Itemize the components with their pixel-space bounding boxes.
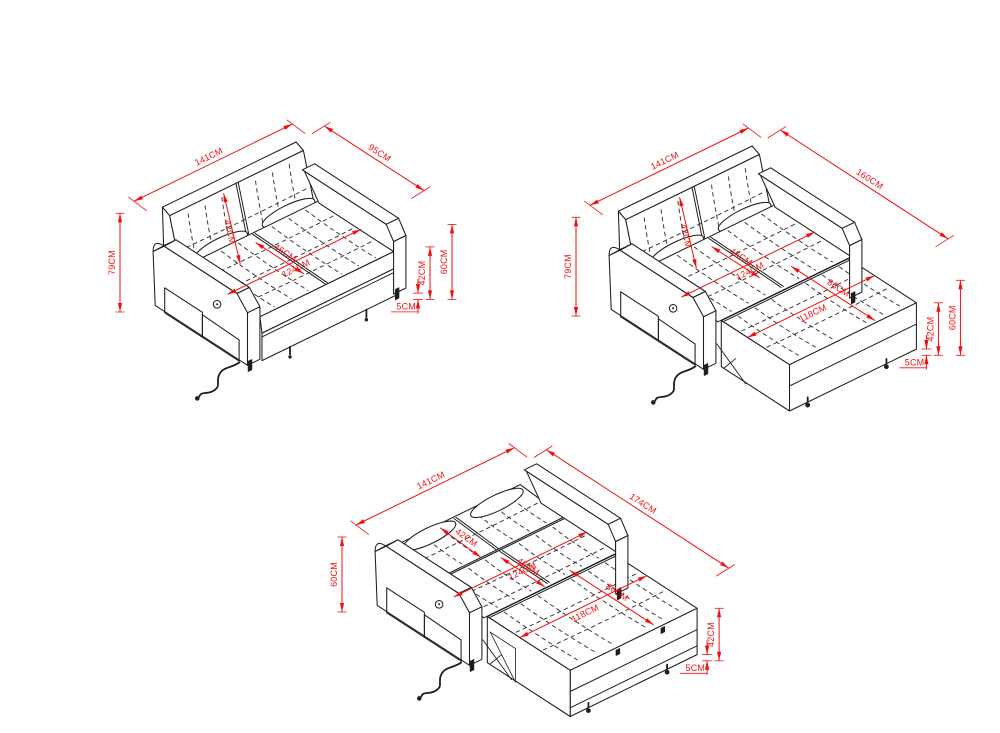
deck-latch <box>661 627 664 634</box>
view-sofa-bed-extended: 141CM174CM60CM42CM46CM124CM86CM118CM42CM… <box>329 444 735 717</box>
power-cord <box>199 362 239 396</box>
view-sofa-closed: 141CM95CM79CM42CM46CM124CM42CM60CM5CM <box>107 120 457 401</box>
usb-port-pin <box>672 307 674 309</box>
right-arm-front-face <box>394 236 406 295</box>
power-plug <box>651 400 656 405</box>
left-arm-front-face <box>704 311 716 370</box>
dimension-label: 79CM <box>563 254 573 279</box>
caster-wheel <box>665 670 670 675</box>
sofa-bed-dimension-diagram: 141CM95CM79CM42CM46CM124CM42CM60CM5CM141… <box>0 0 1000 733</box>
sofa-line-art <box>609 146 916 411</box>
sofa-foot <box>396 288 399 300</box>
power-cord <box>421 662 461 696</box>
caster-wheel <box>884 364 889 369</box>
dimension-label: 60CM <box>329 562 339 587</box>
stowed-caster <box>365 318 368 321</box>
left-arm-front-face <box>470 607 482 666</box>
sofa-line-art <box>153 142 406 401</box>
dimension-overall-height: 79CM <box>563 217 581 316</box>
dimension-surface-height: 42CM <box>925 303 943 356</box>
dimension-label: 60CM <box>439 249 449 274</box>
dimension-arm-height: 60CM <box>947 280 965 355</box>
power-plug <box>417 696 422 701</box>
caster-wheel <box>586 708 591 713</box>
extension-line <box>743 124 761 138</box>
sofa-foot <box>470 660 473 672</box>
usb-port-pin <box>438 603 440 605</box>
dimension-label: 5CM <box>685 663 705 673</box>
dimension-arm-height: 60CM <box>439 224 457 299</box>
left-arm-front-face <box>248 307 260 366</box>
dimension-label: 79CM <box>107 250 117 275</box>
dimension-label: 5CM <box>905 357 925 367</box>
power-plug <box>195 396 200 401</box>
diagram-canvas: 141CM95CM79CM42CM46CM124CM42CM60CM5CM141… <box>0 0 1000 733</box>
extension-line <box>287 120 305 134</box>
extension-line <box>509 444 527 458</box>
sofa-foot <box>852 292 855 304</box>
caster-wheel <box>805 403 810 408</box>
power-cord <box>655 366 695 400</box>
stowed-caster <box>288 355 291 358</box>
dimension-surface-height: 42CM <box>706 608 724 661</box>
usb-port-pin <box>216 303 218 305</box>
dimension-overall-height: 79CM <box>107 213 125 312</box>
deck-latch <box>616 649 619 656</box>
dimension-label: 60CM <box>947 305 957 330</box>
dimension-overall-height: 60CM <box>329 537 347 612</box>
view-sofa-half-extended: 141CM160CM79CM42CM46CM124CM86CM118CM42CM… <box>563 124 965 411</box>
dimension-label: 5CM <box>396 301 416 311</box>
dimension-surface-height: 42CM <box>417 247 435 300</box>
dimension-label: 95CM <box>367 142 393 164</box>
sofa-foot <box>248 360 251 372</box>
sofa-foot <box>704 364 707 376</box>
